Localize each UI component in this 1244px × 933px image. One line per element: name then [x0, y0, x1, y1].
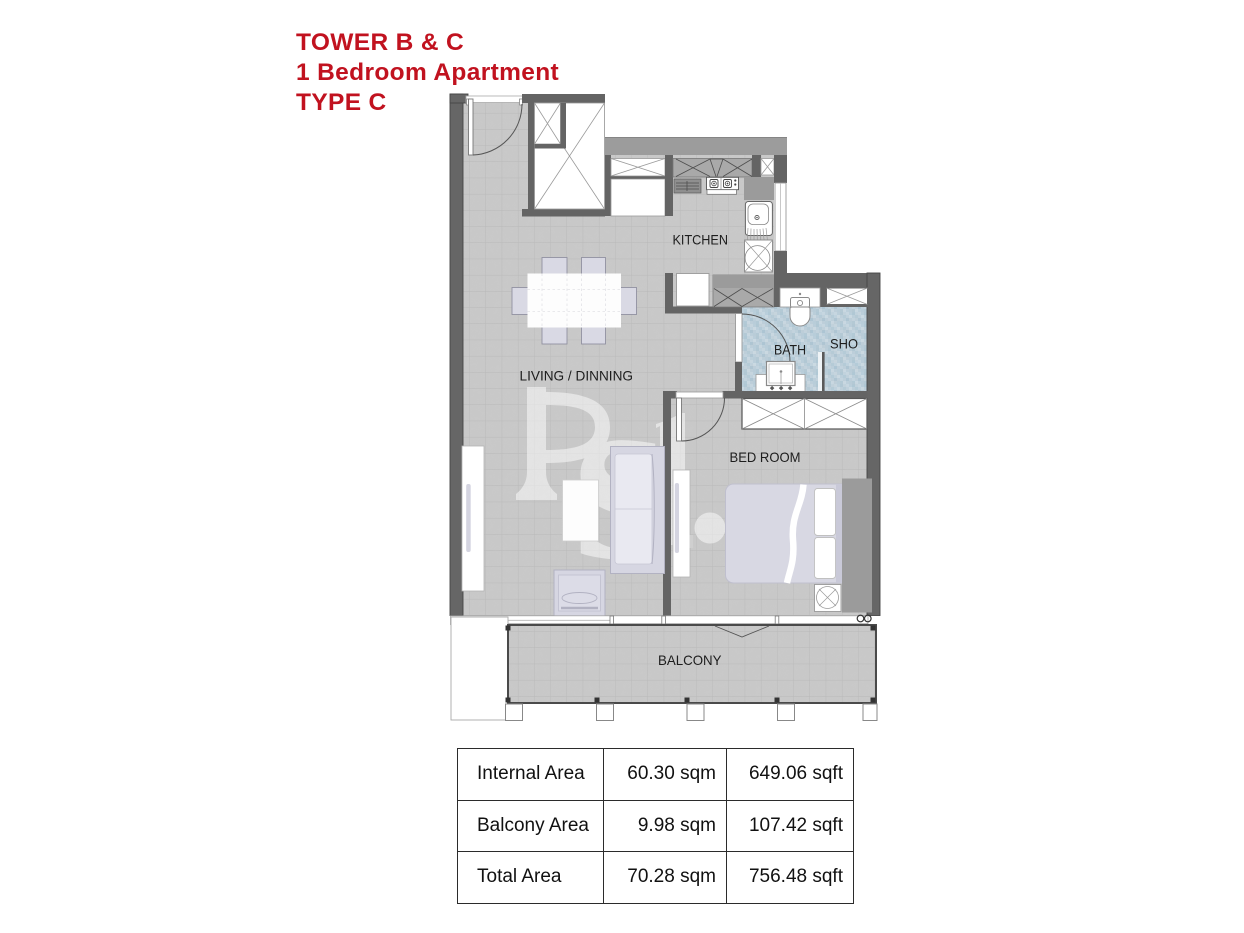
svg-text:BED ROOM: BED ROOM [730, 450, 801, 465]
svg-text:BALCONY: BALCONY [658, 653, 722, 668]
svg-text:LIVING / DINNING: LIVING / DINNING [520, 369, 634, 384]
svg-text:SHO: SHO [830, 337, 858, 352]
svg-text:BATH: BATH [774, 343, 806, 358]
svg-text:KITCHEN: KITCHEN [673, 233, 729, 248]
